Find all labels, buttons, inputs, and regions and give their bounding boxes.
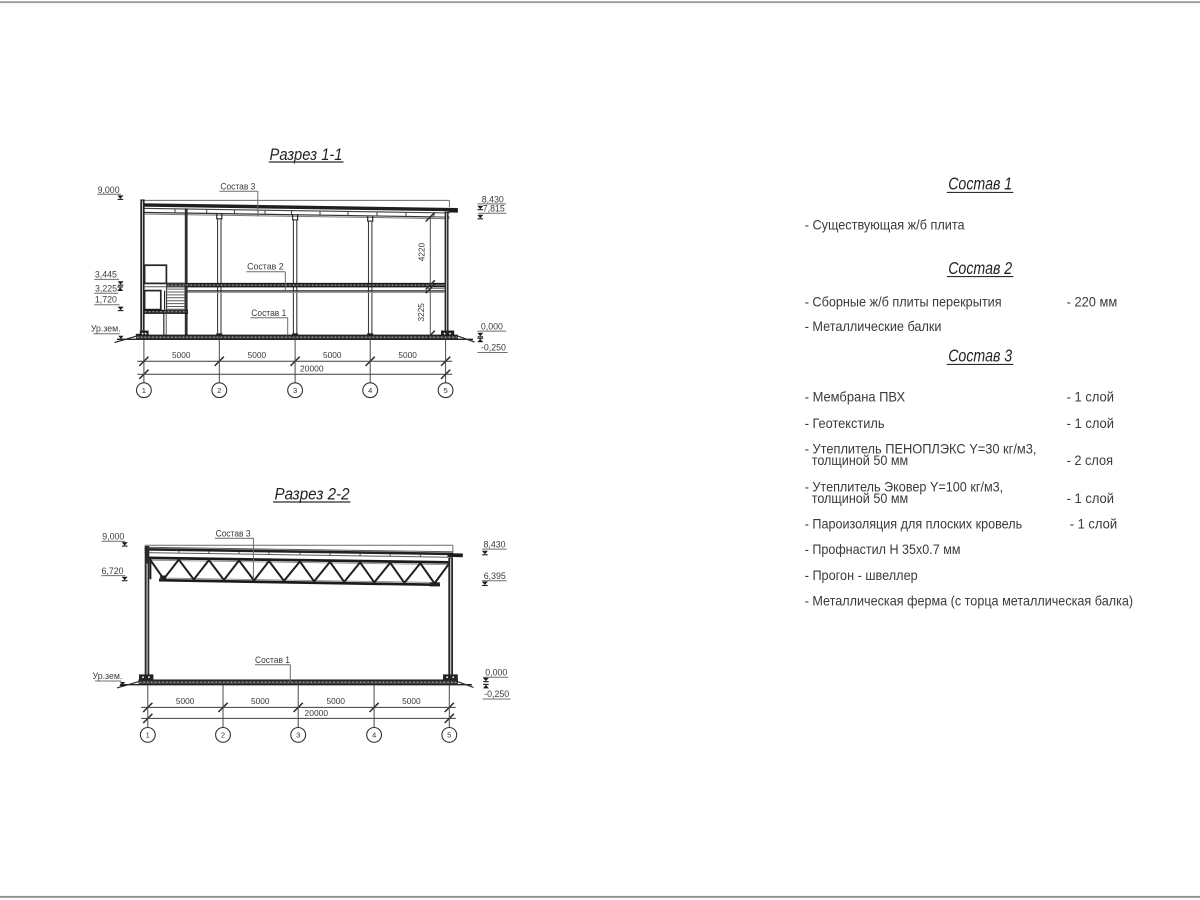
svg-text:- 220 мм: - 220 мм — [1067, 295, 1118, 310]
svg-text:5000: 5000 — [172, 350, 191, 360]
svg-text:1,720: 1,720 — [95, 295, 117, 305]
svg-text:3225: 3225 — [416, 303, 426, 322]
svg-text:- 1 слой: - 1 слой — [1067, 390, 1114, 405]
svg-text:1: 1 — [142, 386, 146, 395]
svg-text:7,815: 7,815 — [483, 204, 505, 214]
svg-text:Состав 3: Состав 3 — [220, 181, 255, 191]
svg-text:- Металлическая ферма (с торца: - Металлическая ферма (с торца металличе… — [805, 594, 1133, 609]
svg-text:- 1 слой: - 1 слой — [1067, 416, 1114, 431]
svg-text:6,395: 6,395 — [484, 571, 506, 581]
svg-text:5000: 5000 — [323, 350, 342, 360]
svg-text:5000: 5000 — [248, 350, 267, 360]
svg-text:0,000: 0,000 — [485, 668, 507, 678]
svg-text:2: 2 — [221, 731, 225, 740]
svg-text:1: 1 — [146, 731, 150, 740]
svg-text:3: 3 — [296, 731, 300, 740]
svg-text:3,445: 3,445 — [95, 269, 117, 279]
svg-text:3: 3 — [293, 386, 297, 395]
svg-text:Состав 1: Состав 1 — [251, 308, 286, 318]
svg-text:5000: 5000 — [402, 696, 421, 706]
svg-text:- Существующая ж/б плита: - Существующая ж/б плита — [805, 218, 965, 233]
svg-text:4: 4 — [368, 386, 372, 395]
svg-text:толщиной 50 мм: толщиной 50 мм — [812, 453, 909, 468]
svg-text:5000: 5000 — [327, 696, 346, 706]
svg-text:- Прогон - швеллер: - Прогон - швеллер — [805, 568, 918, 583]
svg-text:Состав 2: Состав 2 — [247, 262, 284, 272]
svg-text:8,430: 8,430 — [483, 539, 505, 549]
svg-text:9,000: 9,000 — [98, 185, 120, 195]
svg-text:5000: 5000 — [176, 696, 195, 706]
svg-text:Состав 3: Состав 3 — [216, 528, 251, 538]
svg-text:4220: 4220 — [416, 242, 426, 261]
svg-text:- Геотекстиль: - Геотекстиль — [805, 416, 885, 431]
svg-text:0,000: 0,000 — [481, 322, 503, 332]
svg-text:Ур.зем.: Ур.зем. — [93, 671, 123, 681]
svg-text:- Мембрана ПВХ: - Мембрана ПВХ — [805, 390, 905, 405]
svg-text:- 2 слоя: - 2 слоя — [1067, 453, 1113, 468]
svg-text:5000: 5000 — [398, 350, 417, 360]
svg-text:- Профнастил Н 35х0.7 мм: - Профнастил Н 35х0.7 мм — [805, 542, 961, 557]
svg-text:- 1 слой: - 1 слой — [1070, 517, 1117, 532]
svg-text:9,000: 9,000 — [102, 531, 124, 541]
svg-text:толщиной 50 мм: толщиной 50 мм — [812, 491, 909, 506]
svg-text:20000: 20000 — [305, 708, 329, 718]
svg-text:5: 5 — [443, 386, 447, 395]
svg-text:- Пароизоляция для плоских кро: - Пароизоляция для плоских кровель — [805, 517, 1023, 532]
svg-text:Состав 3: Состав 3 — [948, 346, 1012, 366]
svg-text:Состав 1: Состав 1 — [255, 655, 290, 665]
svg-text:Разрез 1-1: Разрез 1-1 — [270, 146, 343, 164]
svg-text:20000: 20000 — [300, 364, 324, 374]
svg-text:Состав 2: Состав 2 — [948, 258, 1012, 278]
svg-text:Разрез 2-2: Разрез 2-2 — [275, 486, 350, 504]
svg-text:Ур.зем.: Ур.зем. — [91, 324, 121, 334]
svg-text:5000: 5000 — [251, 696, 270, 706]
svg-text:Состав 1: Состав 1 — [948, 174, 1012, 194]
svg-text:4: 4 — [372, 731, 376, 740]
svg-text:5: 5 — [447, 731, 451, 740]
svg-text:2: 2 — [217, 386, 221, 395]
svg-text:- Металлические балки: - Металлические балки — [805, 319, 942, 334]
svg-text:- 1 слой: - 1 слой — [1067, 491, 1114, 506]
svg-text:-0,250: -0,250 — [484, 689, 509, 699]
svg-text:6,720: 6,720 — [101, 566, 123, 576]
svg-text:-0,250: -0,250 — [481, 342, 506, 352]
svg-text:3,225: 3,225 — [95, 284, 117, 294]
svg-text:- Сборные ж/б плиты перекрытия: - Сборные ж/б плиты перекрытия — [805, 295, 1002, 310]
